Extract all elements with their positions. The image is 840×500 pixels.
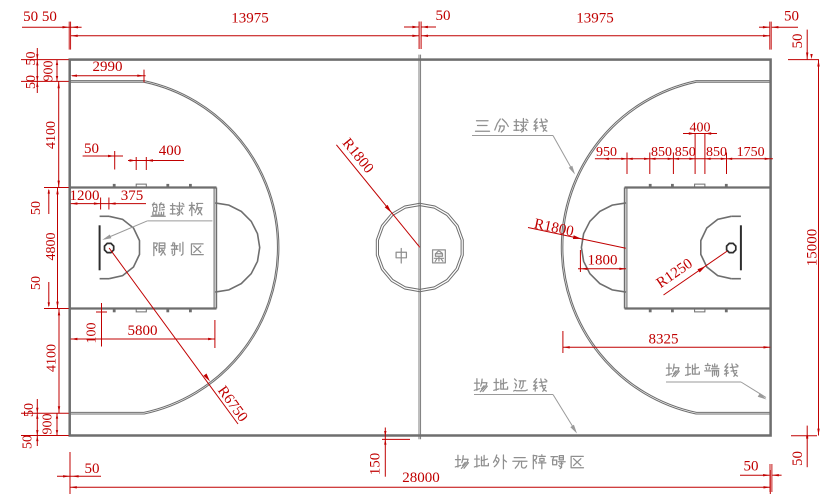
svg-text:R6750: R6750 [214, 383, 250, 425]
svg-text:28000: 28000 [402, 470, 440, 486]
svg-text:50: 50 [29, 276, 44, 290]
svg-text:375: 375 [121, 188, 144, 204]
svg-text:4800: 4800 [44, 233, 59, 261]
svg-text:950: 950 [596, 145, 617, 160]
svg-text:50: 50 [24, 75, 39, 89]
svg-text:900: 900 [42, 61, 57, 82]
svg-text:50: 50 [436, 8, 451, 24]
svg-text:2990: 2990 [93, 59, 123, 75]
svg-text:50: 50 [790, 34, 806, 49]
svg-text:850: 850 [651, 145, 672, 160]
svg-text:50: 50 [22, 403, 37, 417]
svg-text:1200: 1200 [70, 188, 100, 204]
svg-text:50: 50 [24, 52, 39, 66]
svg-text:400: 400 [690, 121, 711, 136]
svg-text:4100: 4100 [44, 121, 59, 149]
svg-text:50: 50 [744, 459, 759, 475]
svg-text:50: 50 [790, 451, 806, 466]
svg-text:50: 50 [29, 201, 44, 215]
svg-text:R1800: R1800 [533, 216, 575, 240]
svg-text:400: 400 [159, 143, 182, 159]
svg-text:850: 850 [706, 145, 727, 160]
svg-text:50: 50 [85, 461, 100, 477]
svg-text:50 50: 50 50 [23, 9, 57, 25]
svg-text:R1250: R1250 [654, 256, 696, 292]
svg-text:100: 100 [85, 323, 100, 344]
svg-text:50: 50 [784, 9, 799, 25]
svg-text:50: 50 [21, 435, 36, 449]
svg-text:1750: 1750 [737, 145, 765, 160]
svg-text:13975: 13975 [231, 11, 269, 27]
svg-text:4100: 4100 [45, 344, 60, 372]
svg-text:13975: 13975 [576, 11, 614, 27]
svg-text:50: 50 [84, 141, 99, 157]
svg-text:8325: 8325 [649, 332, 679, 348]
svg-text:15000: 15000 [805, 229, 821, 267]
svg-text:5800: 5800 [128, 323, 158, 339]
svg-text:900: 900 [41, 414, 56, 435]
svg-text:1800: 1800 [588, 253, 618, 269]
svg-text:150: 150 [368, 453, 384, 476]
svg-text:850: 850 [675, 145, 696, 160]
